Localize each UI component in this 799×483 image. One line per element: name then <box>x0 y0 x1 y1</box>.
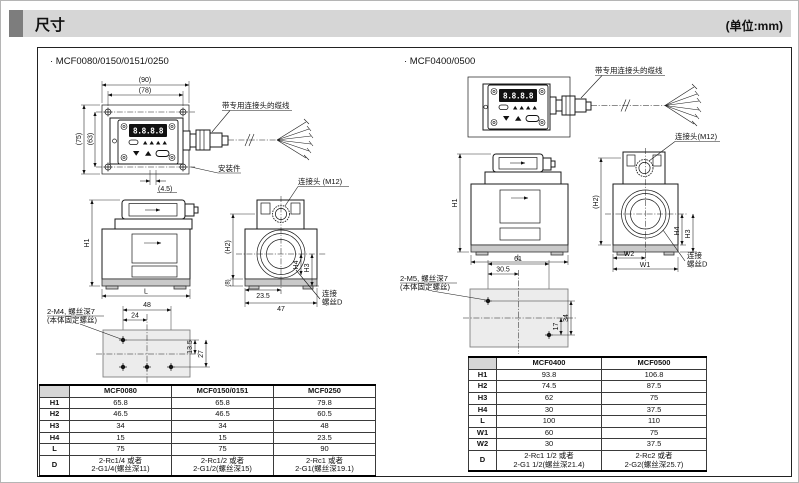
cell: 23.5 <box>274 432 376 444</box>
left-top-view: (90) (78) (75) (63) <box>76 77 313 193</box>
cell: 75 <box>70 444 172 456</box>
cable-assembly <box>550 84 701 126</box>
col-header-mcf0250: MCF0250 <box>274 385 376 397</box>
cable-label: 带专用连接头的缆线 <box>222 100 290 110</box>
cell: 2-Rc1 或者 2-G1(螺丝深19.1) <box>274 455 376 476</box>
corner-cell <box>469 357 497 369</box>
cell: 46.5 <box>70 409 172 421</box>
cable-assembly <box>183 119 313 160</box>
row-label: H1 <box>469 369 497 381</box>
cell: 87.5 <box>602 381 707 393</box>
col-header-mcf0080: MCF0080 <box>70 385 172 397</box>
connection-screw-label-1: 连接 <box>687 250 702 260</box>
dim-h4: H4 <box>674 226 681 235</box>
row-label: H2 <box>40 409 70 421</box>
m5-screw-note: 2-M5, 螺丝深7 <box>400 273 448 283</box>
cable-label: 带专用连接头的缆线 <box>595 65 663 75</box>
cell: 100 <box>497 416 602 428</box>
dim-w1: W1 <box>640 262 651 269</box>
right-dimension-table: MCF0400 MCF0500 H1 93.8 106.8 H2 74.5 87… <box>468 356 707 472</box>
dim-h1: H1 <box>452 198 459 207</box>
connector-m12-label: 连接头(M12) <box>675 131 718 141</box>
header-accent-block <box>9 10 23 37</box>
left-side-view: H1 L <box>84 200 198 299</box>
dim-78: (78) <box>139 88 151 95</box>
unit-label: (单位:mm) <box>726 17 783 34</box>
dim-4-5: (4.5) <box>158 186 172 193</box>
connection-screw-label-2: 螺丝D <box>687 259 708 269</box>
dim-l: L <box>144 289 148 296</box>
right-top-view: 带专用连接头的缆线 <box>468 65 701 137</box>
right-mounting-plate-view: 61 30.5 17 34 2-M5, 螺丝深7 (本体固定螺丝) <box>400 256 576 354</box>
dim-34: 34 <box>563 314 570 322</box>
table-row-h2: H2 46.5 46.5 60.5 <box>40 409 376 421</box>
col-header-mcf0150-0151: MCF0150/0151 <box>172 385 274 397</box>
cell: 65.8 <box>172 397 274 409</box>
dim-w2: W2 <box>624 251 635 258</box>
dim-47: 47 <box>277 306 285 313</box>
cell: 48 <box>274 420 376 432</box>
cell: 37.5 <box>602 439 707 451</box>
connector-m12-label: 连接头 (M12) <box>298 176 343 186</box>
cell: 75 <box>602 392 707 404</box>
left-mounting-plate-view: 48 24 13.5 27 2-M4, 螺丝深7 (本体固定螺丝) <box>47 302 210 384</box>
dim-h1: H1 <box>84 238 91 247</box>
table-row-h3: H3 34 34 48 <box>40 420 376 432</box>
dim-63: (63) <box>88 133 95 145</box>
table-row-h4: H4 30 37.5 <box>469 404 707 416</box>
cell: 106.8 <box>602 369 707 381</box>
row-label: H3 <box>469 392 497 404</box>
dim-90: (90) <box>139 77 151 84</box>
cell: 62 <box>497 392 602 404</box>
table-row-w2: W2 30 37.5 <box>469 439 707 451</box>
page-title: 尺寸 <box>35 14 65 35</box>
table-row-h1: H1 65.8 65.8 79.8 <box>40 397 376 409</box>
dim-61: 61 <box>514 256 522 263</box>
cell: 60.5 <box>274 409 376 421</box>
cell: 79.8 <box>274 397 376 409</box>
table-row-l: L 75 75 90 <box>40 444 376 456</box>
wire-fan <box>277 119 313 160</box>
col-header-mcf0500: MCF0500 <box>602 357 707 369</box>
wire-fan <box>665 84 701 126</box>
dim-h4: H4 <box>293 260 300 269</box>
content-box: · MCF0080/0150/0151/0250 · MCF0400/0500 <box>37 47 792 477</box>
table-header-row: MCF0400 MCF0500 <box>469 357 707 369</box>
row-label: H3 <box>40 420 70 432</box>
left-front-view: (H2) (8) H4 H3 23.5 47 连接 螺丝D 连接头 (M1 <box>225 176 349 313</box>
cell: 46.5 <box>172 409 274 421</box>
table-row-d: D 2-Rc1 1/2 或者 2-G1 1/2(螺丝深21.4) 2-Rc2 或… <box>469 451 707 472</box>
connection-screw-label-1: 连接 <box>322 288 337 298</box>
right-side-view: H1 L <box>452 154 568 265</box>
dim-8: (8) <box>226 279 232 286</box>
cell: 93.8 <box>497 369 602 381</box>
left-drawing: 8.8.8.8 (90) <box>40 48 398 384</box>
cell: 90 <box>274 444 376 456</box>
cell: 34 <box>172 420 274 432</box>
cell: 37.5 <box>602 404 707 416</box>
cell: 75 <box>602 427 707 439</box>
corner-cell <box>40 385 70 397</box>
table-row-h2: H2 74.5 87.5 <box>469 381 707 393</box>
row-label: H1 <box>40 397 70 409</box>
row-label: L <box>40 444 70 456</box>
dim-27: 27 <box>198 350 205 358</box>
table-row-d: D 2-Rc1/4 或者 2-G1/4(螺丝深11) 2-Rc1/2 或者 2-… <box>40 455 376 476</box>
table-row-h3: H3 62 75 <box>469 392 707 404</box>
col-header-mcf0400: MCF0400 <box>497 357 602 369</box>
row-label: H2 <box>469 381 497 393</box>
dim-30-5: 30.5 <box>496 267 510 274</box>
cell: 75 <box>172 444 274 456</box>
cell: 34 <box>70 420 172 432</box>
row-label: L <box>469 416 497 428</box>
m4-screw-note: 2-M4, 螺丝深7 <box>47 306 95 316</box>
table-row-h1: H1 93.8 106.8 <box>469 369 707 381</box>
dim-23-5: 23.5 <box>256 293 270 300</box>
table-header-row: MCF0080 MCF0150/0151 MCF0250 <box>40 385 376 397</box>
dim-24: 24 <box>131 313 139 320</box>
dim-h2: (H2) <box>225 240 232 254</box>
cell: 2-Rc1 1/2 或者 2-G1 1/2(螺丝深21.4) <box>497 451 602 472</box>
dim-h3: H3 <box>304 263 311 272</box>
base-strip <box>102 279 190 286</box>
cell: 60 <box>497 427 602 439</box>
mount-label: 安装件 <box>218 163 241 173</box>
row-label: H4 <box>469 404 497 416</box>
dim-17: 17 <box>553 323 560 331</box>
cell: 74.5 <box>497 381 602 393</box>
page-header: 尺寸 (单位:mm) <box>9 10 791 37</box>
row-label: D <box>469 451 497 472</box>
cell: 15 <box>172 432 274 444</box>
row-label: W1 <box>469 427 497 439</box>
dim-48: 48 <box>143 302 151 309</box>
datasheet-page: 尺寸 (单位:mm) · MCF0080/0150/0151/0250 · MC… <box>0 0 799 483</box>
left-dimension-table: MCF0080 MCF0150/0151 MCF0250 H1 65.8 65.… <box>39 384 376 477</box>
connection-screw-label-2: 螺丝D <box>322 297 343 307</box>
cell: 110 <box>602 416 707 428</box>
base-strip <box>471 245 568 252</box>
dim-13-5: 13.5 <box>187 340 194 354</box>
cell: 30 <box>497 439 602 451</box>
table-row-w1: W1 60 75 <box>469 427 707 439</box>
cell: 30 <box>497 404 602 416</box>
dim-h2: (H2) <box>593 195 600 209</box>
right-front-view: (H2) H4 H3 W2 W1 连接 螺丝D 连接头(M12) <box>593 131 720 272</box>
row-label: D <box>40 455 70 476</box>
cell: 2-Rc1/4 或者 2-G1/4(螺丝深11) <box>70 455 172 476</box>
row-label: W2 <box>469 439 497 451</box>
cell: 2-Rc1/2 或者 2-G1/2(螺丝深15) <box>172 455 274 476</box>
table-row-l: L 100 110 <box>469 416 707 428</box>
cell: 15 <box>70 432 172 444</box>
cell: 2-Rc2 或者 2-G2(螺丝深25.7) <box>602 451 707 472</box>
right-drawing: 带专用连接头的缆线 H1 <box>398 48 792 384</box>
cell: 65.8 <box>70 397 172 409</box>
row-label: H4 <box>40 432 70 444</box>
dim-75: (75) <box>76 133 83 145</box>
table-row-h4: H4 15 15 23.5 <box>40 432 376 444</box>
dim-h3: H3 <box>685 229 692 238</box>
